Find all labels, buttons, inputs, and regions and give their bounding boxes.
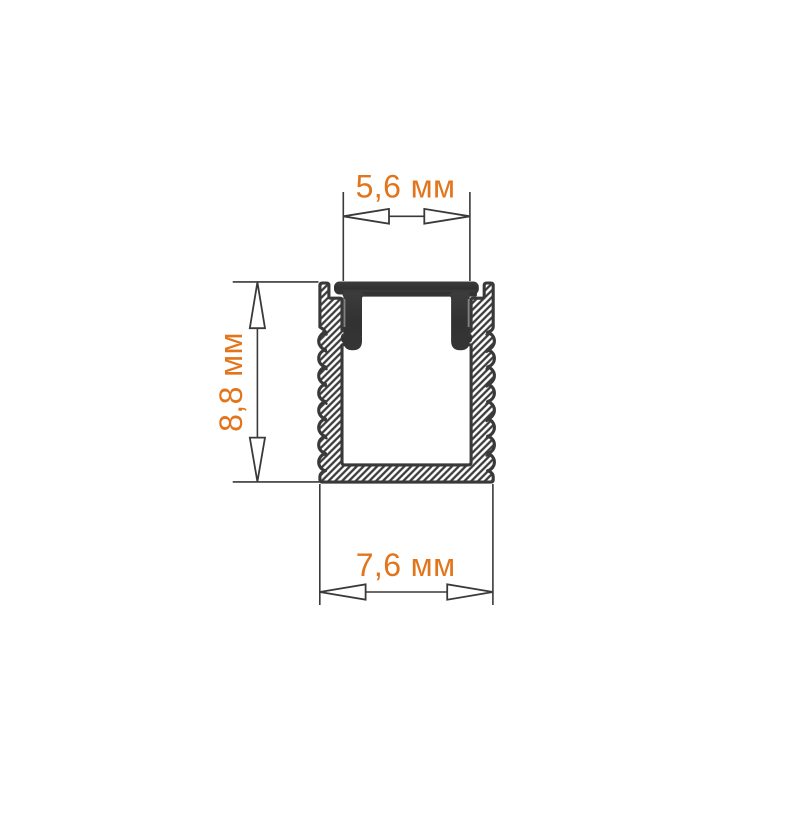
svg-text:7,6 мм: 7,6 мм <box>356 547 456 583</box>
svg-text:5,6 мм: 5,6 мм <box>356 169 456 205</box>
svg-text:8,8 мм: 8,8 мм <box>213 332 249 432</box>
